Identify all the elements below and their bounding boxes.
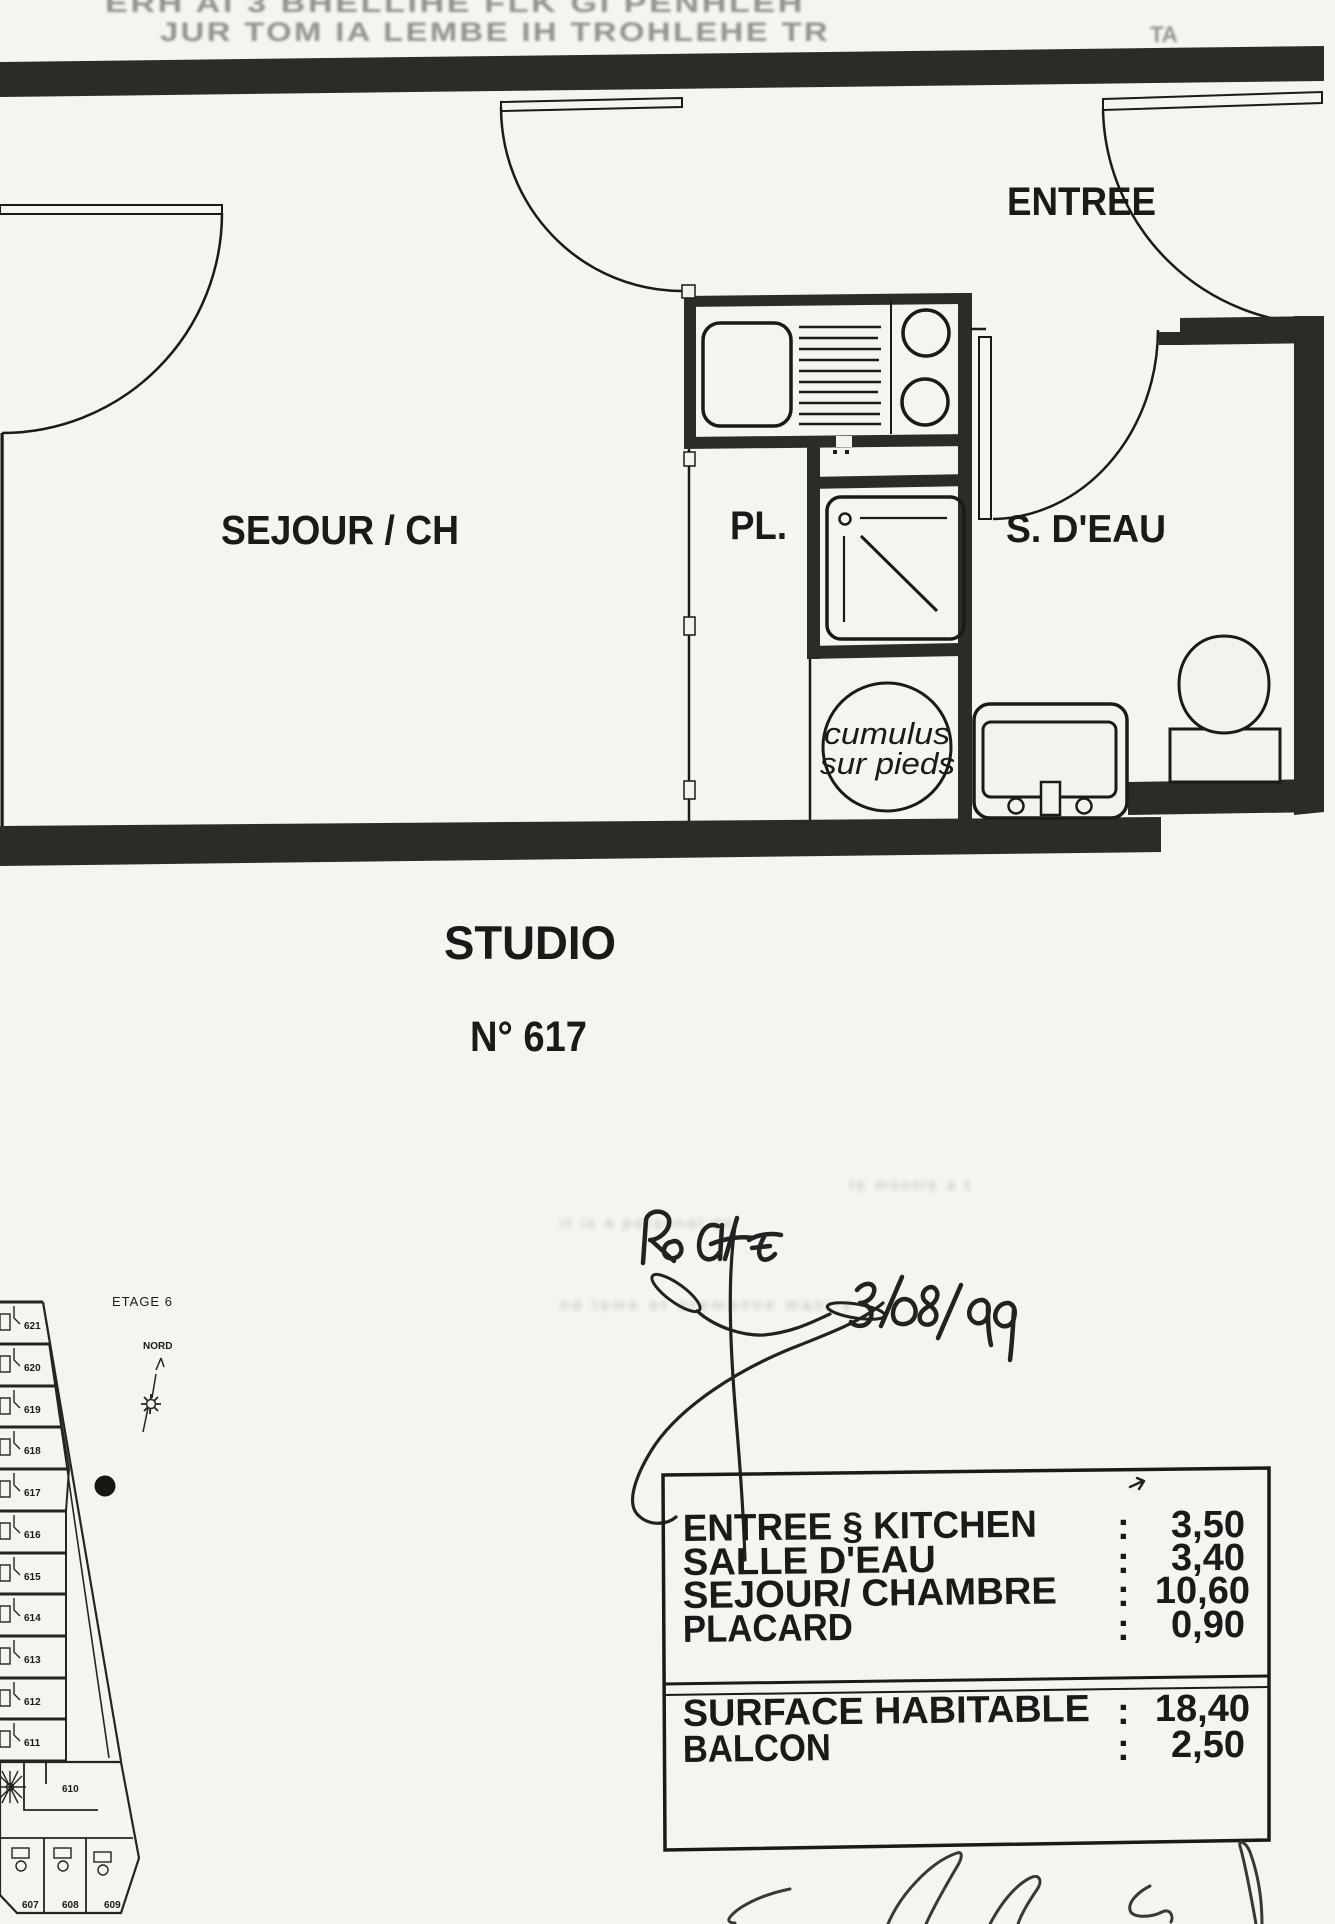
svg-text:N° 617: N° 617 bbox=[470, 1013, 587, 1061]
svg-text:616: 616 bbox=[24, 1530, 41, 1541]
svg-text:613: 613 bbox=[24, 1655, 41, 1666]
svg-text:SEJOUR / CH: SEJOUR / CH bbox=[221, 507, 459, 553]
svg-text:618: 618 bbox=[24, 1446, 41, 1457]
svg-text:S. D'EAU: S. D'EAU bbox=[1006, 508, 1166, 551]
svg-text:TA: TA bbox=[1150, 22, 1178, 47]
svg-text:2,50: 2,50 bbox=[1171, 1724, 1245, 1766]
svg-text:615: 615 bbox=[24, 1572, 41, 1583]
svg-text:le montre a t: le montre a t bbox=[850, 1177, 972, 1194]
svg-text::: : bbox=[1117, 1607, 1130, 1649]
svg-text:PL.: PL. bbox=[730, 504, 787, 548]
svg-text::: : bbox=[1117, 1727, 1130, 1769]
svg-text:617: 617 bbox=[24, 1488, 41, 1499]
svg-text:STUDIO: STUDIO bbox=[444, 916, 616, 969]
svg-text:NORD: NORD bbox=[143, 1341, 172, 1352]
svg-text:sur pieds: sur pieds bbox=[820, 746, 955, 781]
svg-text:611: 611 bbox=[24, 1738, 41, 1749]
svg-text:BALCON: BALCON bbox=[683, 1727, 832, 1771]
svg-text:608: 608 bbox=[62, 1900, 79, 1911]
svg-text:610: 610 bbox=[62, 1784, 79, 1795]
svg-text:609: 609 bbox=[104, 1900, 121, 1911]
svg-text:620: 620 bbox=[24, 1363, 41, 1374]
svg-text:nd lame et aremanne mant e: nd lame et aremanne mant e bbox=[560, 1297, 856, 1314]
svg-text:0,90: 0,90 bbox=[1171, 1604, 1245, 1646]
svg-text:PLACARD: PLACARD bbox=[683, 1607, 854, 1651]
svg-text:ERH AI 3 BHELLIHE FLK GI PENHL: ERH AI 3 BHELLIHE FLK GI PENHLEH bbox=[105, 0, 805, 18]
svg-text:ETAGE 6: ETAGE 6 bbox=[112, 1294, 173, 1309]
svg-text:ENTREE: ENTREE bbox=[1007, 180, 1156, 224]
svg-text:612: 612 bbox=[24, 1697, 41, 1708]
svg-text:JUR TOM IA LEMBE IH TROHLEHE T: JUR TOM IA LEMBE IH TROHLEHE TR bbox=[160, 17, 830, 47]
svg-text:621: 621 bbox=[24, 1321, 41, 1332]
svg-text:614: 614 bbox=[24, 1613, 41, 1624]
svg-text:619: 619 bbox=[24, 1405, 41, 1416]
svg-text:607: 607 bbox=[22, 1900, 39, 1911]
